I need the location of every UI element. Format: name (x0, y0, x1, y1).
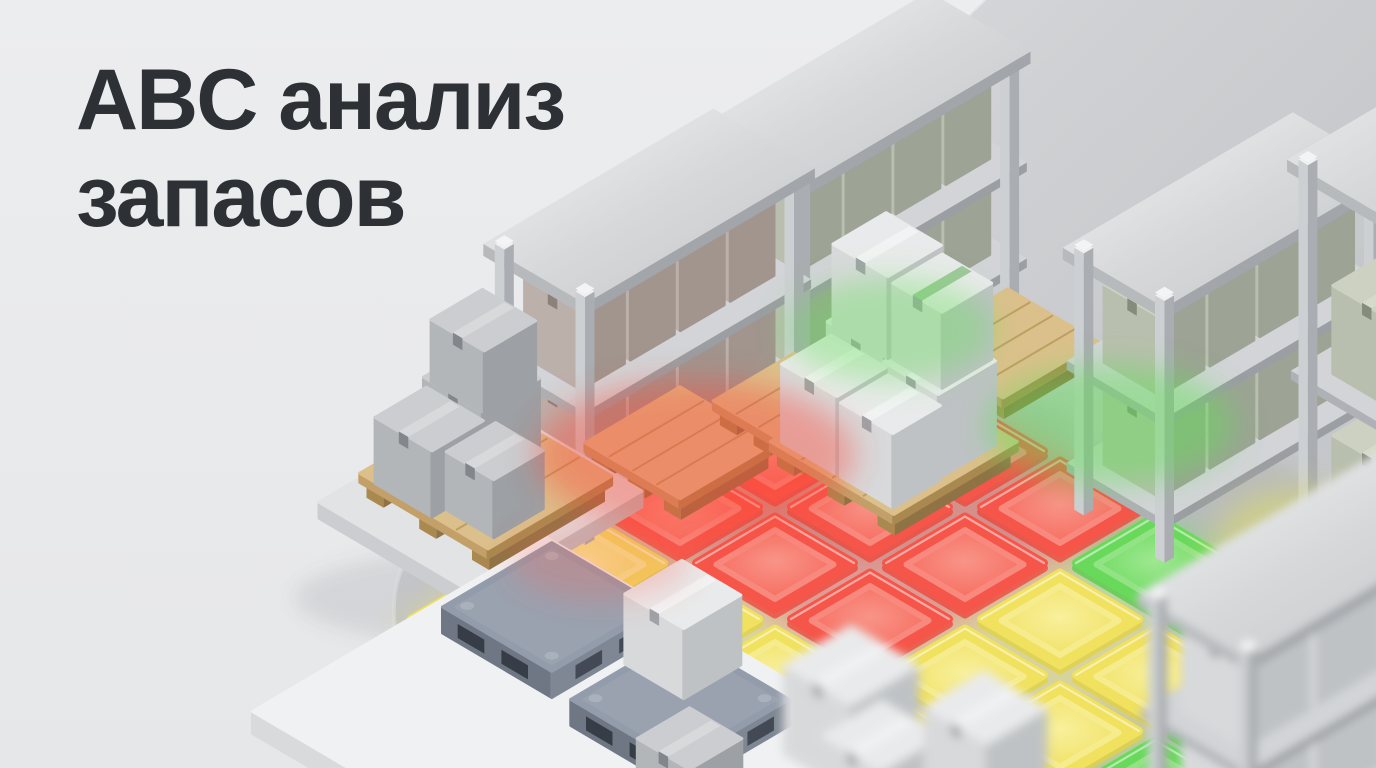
title-line-2: запасов (76, 149, 564, 246)
title-line-1: ABC анализ (76, 52, 564, 149)
abc-analysis-cover: ABC анализ запасов (0, 0, 1376, 768)
page-title: ABC анализ запасов (76, 52, 564, 246)
